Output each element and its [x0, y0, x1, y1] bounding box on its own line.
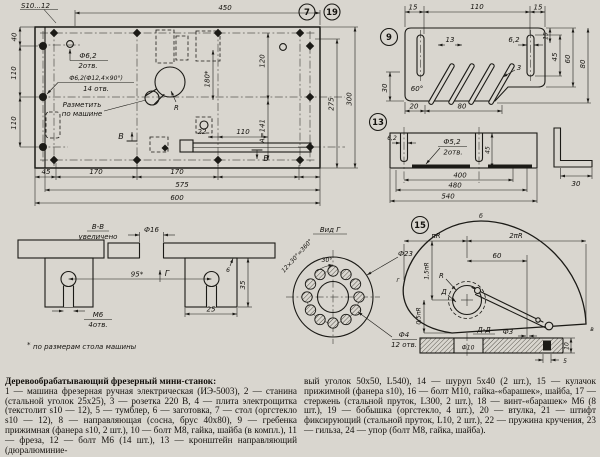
dim-15r: 15 — [543, 32, 550, 40]
section-dd-title: Д-Д — [476, 326, 491, 334]
note-mark-1: Разметить — [63, 101, 102, 109]
callout-15: 15 — [414, 221, 426, 231]
dim-15a: 15 — [409, 4, 418, 12]
comb-teeth — [428, 63, 515, 105]
centerlines — [38, 29, 345, 166]
dim-25: 25 — [207, 306, 216, 314]
dim-30-angle: 30 — [572, 180, 581, 188]
dim-45: 45 — [42, 168, 51, 176]
main-plan-view: В В 450 S10...12 40 110 110 45 170 170 5… — [10, 2, 358, 206]
dim-15b: 15 — [534, 4, 543, 12]
detail-15-cam: 15 πR 2πR 60 1,5πR 0,5πR R Д а б в г Ф3 … — [396, 213, 594, 365]
dim-f23: Ф23 — [398, 250, 413, 258]
dim-f10: Ф10 — [462, 345, 475, 352]
dim-170b: 170 — [170, 168, 184, 176]
dim-5: 5 — [563, 358, 567, 365]
dim-f4: Ф4 — [399, 331, 409, 339]
point-v: в — [590, 326, 594, 333]
machine-outline-hidden — [46, 30, 220, 152]
dim-3: 3 — [517, 64, 521, 72]
footnote-text: по размерам стола машины — [33, 343, 137, 351]
dim-540: 540 — [441, 193, 455, 201]
dim-60r: 60 — [564, 54, 572, 63]
section-bb-title: В-В — [92, 223, 104, 231]
dim-300: 300 — [346, 92, 354, 106]
dim-180: 180* — [204, 70, 212, 87]
dim-480: 480 — [448, 182, 462, 190]
callout-13: 13 — [372, 118, 384, 128]
dim-95: 95* — [131, 271, 144, 279]
hole-notes: Ф6,2 2отв. Ф6,2(Ф12,4×90°) 14 отв. Разме… — [47, 49, 146, 118]
dim-80b: 80 — [458, 103, 467, 111]
dim-110-bracket: 110 — [236, 128, 250, 136]
dim-15piR: 1,5πR — [424, 262, 431, 279]
note-hole-62: Ф6,2 — [79, 52, 97, 60]
dim-110: 110 — [470, 3, 484, 11]
dim-30: 30 — [381, 83, 389, 92]
dim-20b: 20 — [410, 103, 419, 111]
dim-05piR: 0,5πR — [416, 307, 423, 324]
section-bb-view: В-В увеличено Ф16 М6 4отв. 25 35 6 95* — [18, 223, 275, 351]
dim-10: 10 — [564, 342, 571, 350]
dim-piR: πR — [431, 232, 440, 240]
dim-600: 600 — [170, 194, 184, 202]
plate-thickness-note: S10...12 — [21, 2, 50, 10]
dim-f16: Ф16 — [144, 226, 159, 234]
wood-block-right — [185, 258, 237, 307]
radius-label: R — [174, 104, 179, 112]
dim-110-left2: 110 — [10, 116, 18, 130]
section-d-arrow-label: Д — [440, 288, 447, 296]
dim-2piR: 2πR — [509, 232, 523, 240]
dim-60deg: 60° — [411, 85, 423, 93]
dim-60: 60 — [493, 252, 502, 260]
callout-9: 9 — [386, 33, 392, 43]
note-mark-2: по машине — [62, 110, 103, 118]
dim-62-slot: 6,2 — [387, 135, 397, 142]
dim-35: 35 — [239, 280, 247, 289]
detail-9-comb: 9 15 110 15 13 6,2 3 60° 30 15 45 — [381, 3, 592, 114]
dim-40: 40 — [11, 32, 19, 41]
detail-9-dimensions: 15 110 15 13 6,2 3 60° 30 15 45 60 80 20… — [381, 3, 591, 114]
dim-f4-qty: 12 отв. — [391, 341, 417, 349]
angle-end-view: 30 — [554, 128, 592, 188]
drawing-sheet: В В 450 S10...12 40 110 110 45 170 170 5… — [0, 0, 600, 457]
note-hole-62-qty: 2отв. — [78, 62, 97, 70]
dim-45-slot: 45 — [485, 146, 492, 154]
dim-45r: 45 — [551, 52, 559, 61]
dim-450: 450 — [218, 4, 232, 12]
description-text-2: вый уголок 50х50, L540), 14 — шуруп 5х40… — [304, 376, 596, 435]
section-dd: Ф10 10 5 — [420, 333, 575, 365]
dim-f3: Ф3 — [503, 328, 513, 336]
point-b: б — [479, 213, 483, 220]
dim-m6-qty: 4отв. — [88, 321, 107, 329]
dim-m6: М6 — [93, 311, 104, 319]
view-g: Вид Г Ф23 Ф4 12 отв. 12×30°=360° 30° — [280, 226, 417, 349]
note-hole-csk-qty: 14 отв. — [83, 85, 109, 93]
mounting-holes — [39, 29, 314, 164]
wood-block-left — [45, 258, 93, 307]
dim-575: 575 — [175, 181, 189, 189]
dim-110-left1: 110 — [10, 66, 18, 80]
dim-f52: Ф5,2 — [443, 138, 461, 146]
dim-80r: 80 — [579, 59, 587, 68]
parts-description: Деревообрабатывающий фрезерный мини-стан… — [5, 377, 596, 455]
dim-400: 400 — [453, 172, 467, 180]
dim-170a: 170 — [89, 168, 103, 176]
description-text-1: 1 — машина фрезерная ручная электрическа… — [5, 386, 297, 455]
dim-6: 6 — [226, 267, 230, 274]
bracket-outline — [390, 133, 537, 168]
base-plate-outline — [35, 27, 320, 168]
callout-19: 19 — [326, 8, 338, 18]
point-g: г — [396, 277, 400, 284]
dim-62: 6,2 — [508, 36, 520, 44]
dim-275: 275 — [328, 97, 336, 111]
dim-22: 22 — [198, 128, 207, 136]
footnote-star: * — [27, 341, 31, 349]
dim-A141: А=141 — [259, 119, 267, 144]
section-bb-dimensions: М6 4отв. 25 35 6 95* Г — [52, 258, 252, 329]
keyhole-slot — [145, 67, 185, 105]
description-column-1: Деревообрабатывающий фрезерный мини-стан… — [5, 377, 297, 455]
dim-f52-qty: 2отв. — [443, 149, 462, 157]
angle-note: 12×30°=360° — [280, 238, 314, 274]
dim-R-cam: R — [439, 272, 444, 280]
angle-30: 30° — [322, 257, 333, 264]
note-hole-csk: Ф6,2(Ф12,4×90°) — [69, 75, 123, 82]
dim-120: 120 — [259, 54, 267, 68]
technical-drawing: В В 450 S10...12 40 110 110 45 170 170 5… — [0, 0, 600, 377]
view-g-title: Вид Г — [320, 226, 341, 234]
detail-13-bracket: 13 6,2 Ф5,2 2отв. 45 400 480 540 30 — [370, 114, 593, 204]
description-column-2: вый уголок 50х50, L540), 14 — шуруп 5х40… — [304, 377, 596, 455]
callout-7-19: 7 19 — [299, 4, 340, 20]
dim-13: 13 — [446, 36, 455, 44]
section-b-label-1: В — [118, 132, 124, 141]
callout-7: 7 — [304, 8, 310, 18]
view-g-arrow-label: Г — [165, 269, 170, 278]
guide-bracket-plan — [162, 121, 312, 152]
